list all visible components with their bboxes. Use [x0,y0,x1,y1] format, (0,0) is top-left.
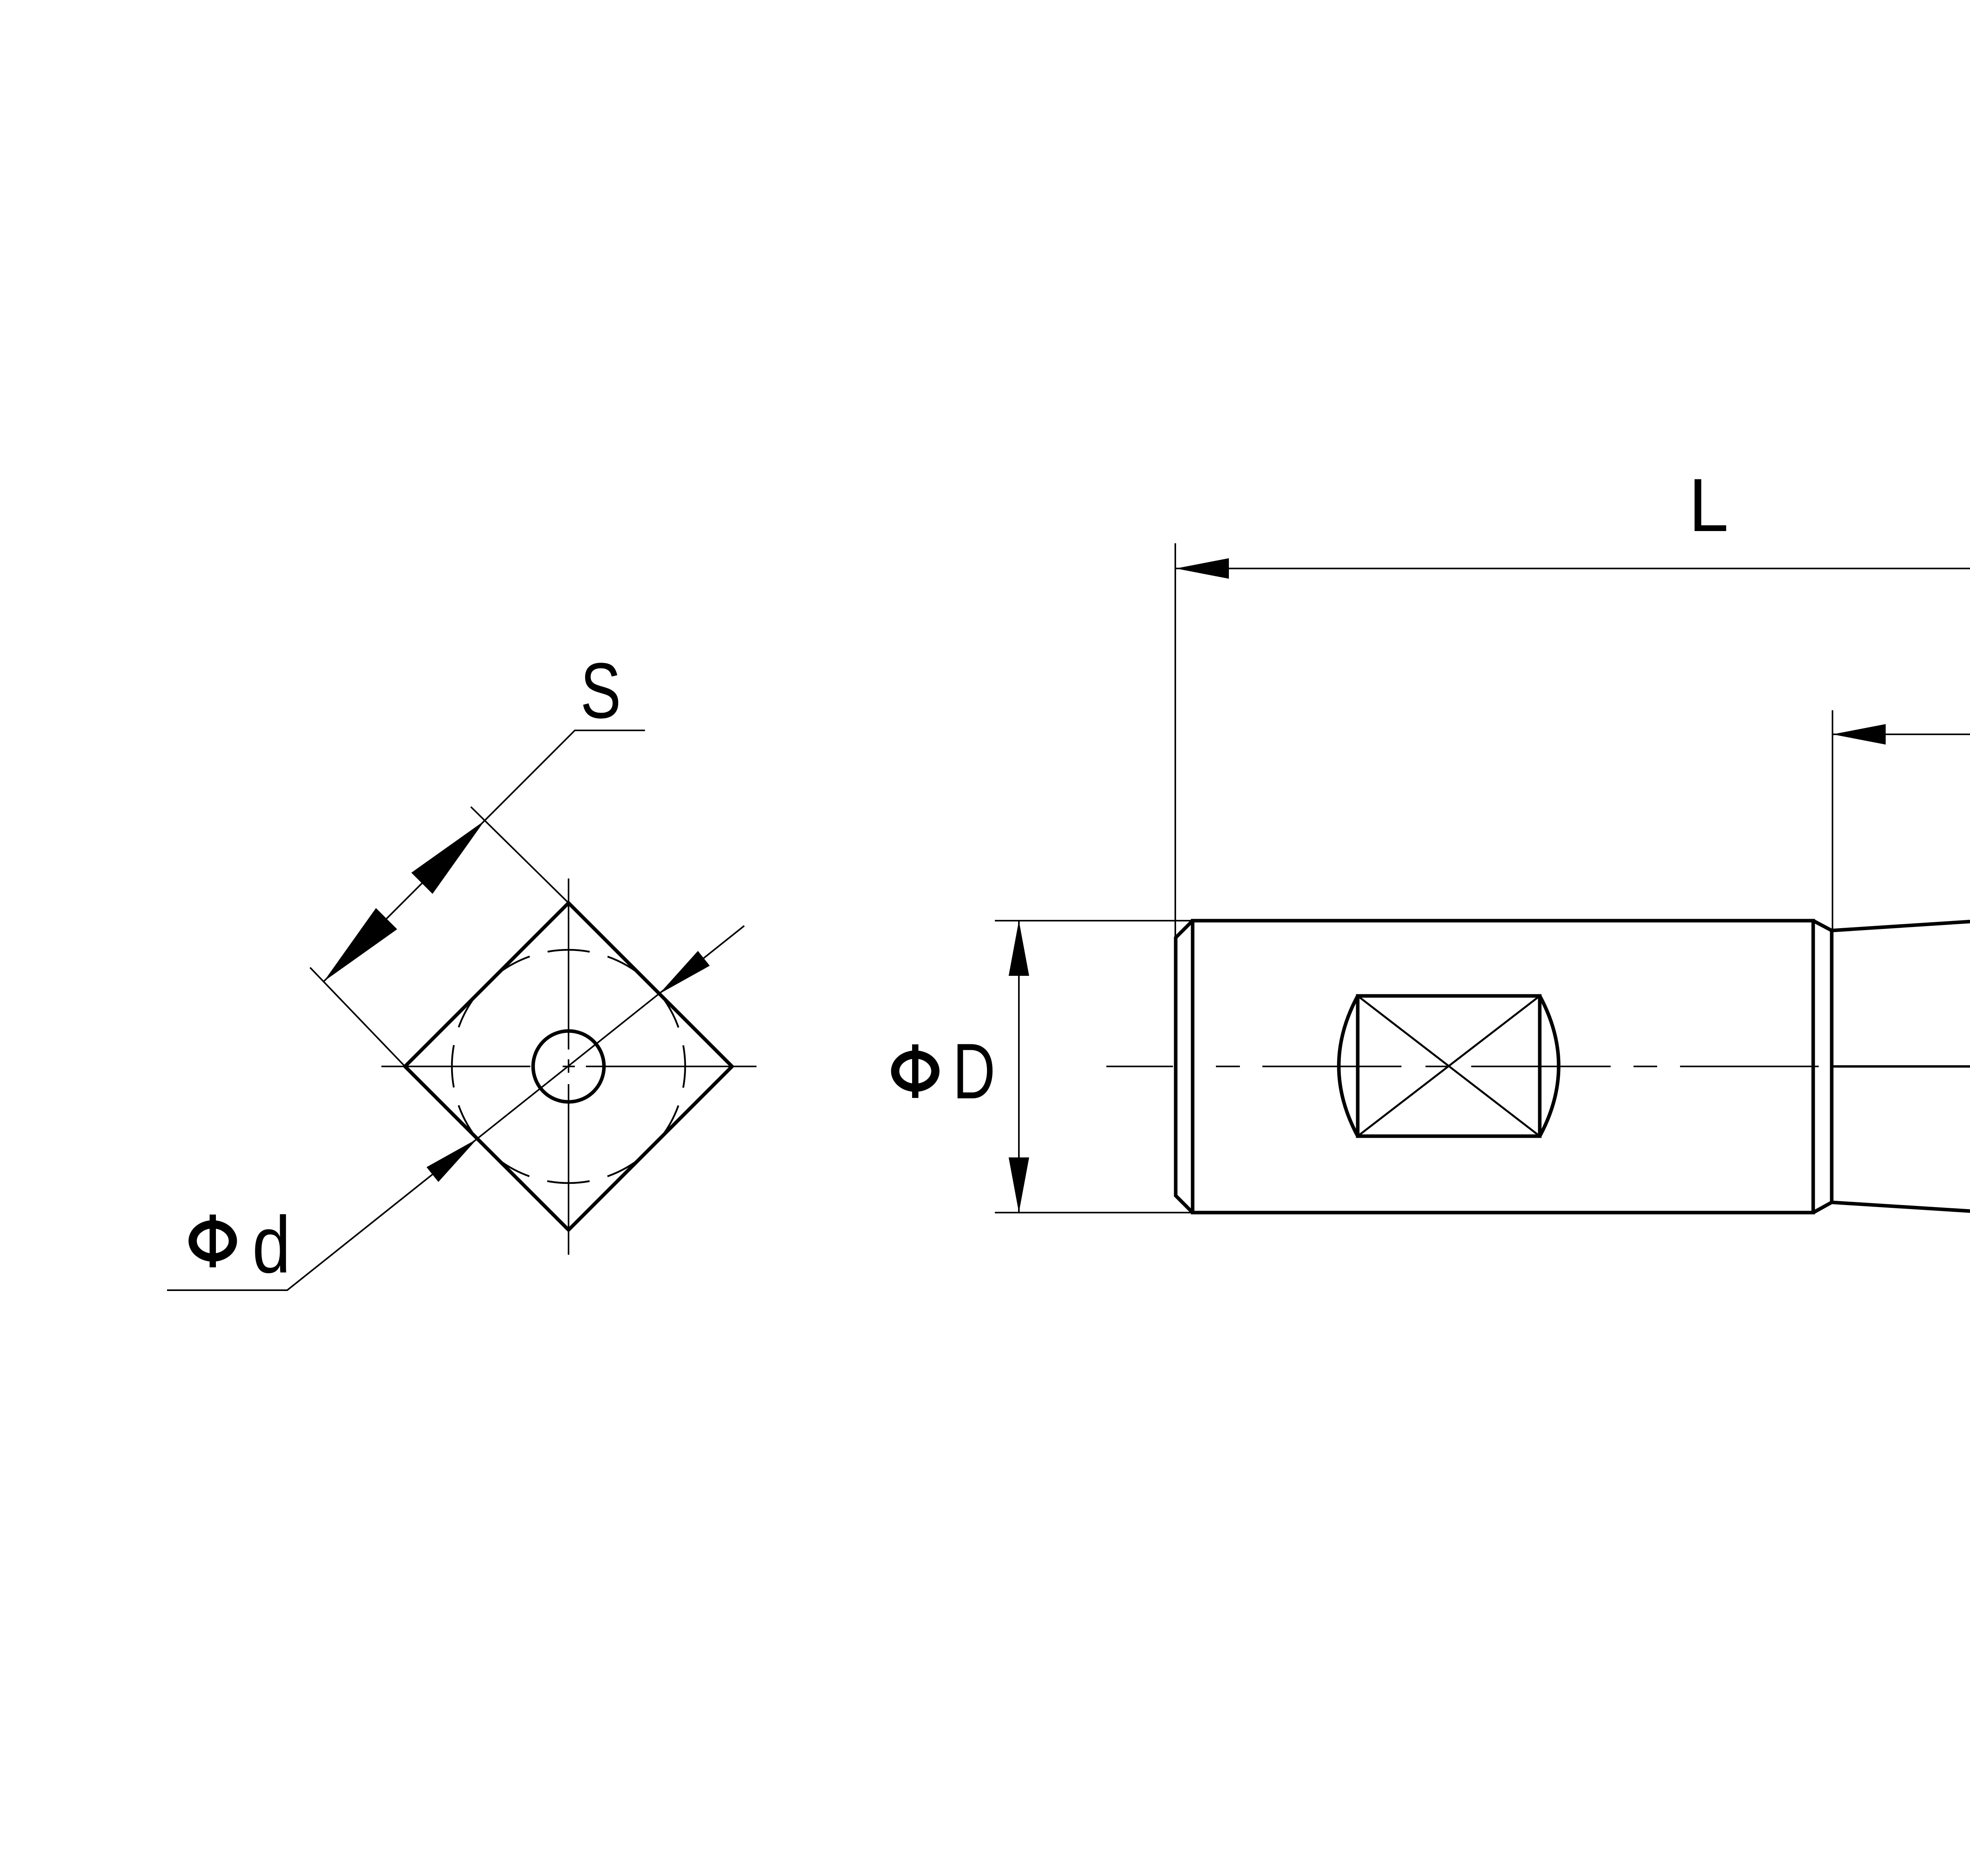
svg-text:D: D [953,1027,995,1115]
svg-text:S: S [580,646,621,735]
svg-text:d: d [252,1200,291,1290]
svg-text:L: L [1689,463,1728,547]
